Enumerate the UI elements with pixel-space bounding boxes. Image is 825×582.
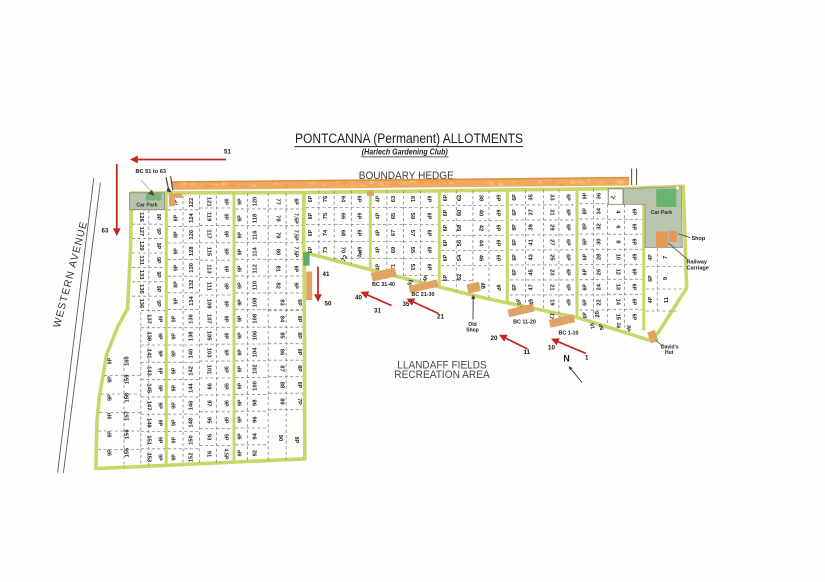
svg-text:32: 32 [597,223,603,229]
svg-text:9P: 9P [238,433,244,440]
svg-text:Carriage: Carriage [687,266,709,272]
svg-text:6P: 6P [631,239,637,246]
svg-text:20: 20 [595,310,602,317]
svg-text:100: 100 [253,381,259,391]
svg-text:9P: 9P [223,213,229,220]
svg-text:6P: 6P [631,284,637,291]
svg-text:90: 90 [277,435,283,441]
svg-text:6P: 6P [583,238,589,245]
svg-text:9P: 9P [223,198,229,205]
svg-text:4P: 4P [648,296,654,303]
svg-text:51: 51 [224,149,231,156]
svg-text:102: 102 [253,364,259,374]
svg-text:26: 26 [597,268,603,275]
svg-text:BC 11-20: BC 11-20 [513,320,536,326]
svg-text:9P: 9P [108,376,114,383]
svg-text:14: 14 [615,299,621,306]
svg-text:6P: 6P [443,239,449,246]
svg-text:97: 97 [206,400,212,406]
svg-text:9P: 9P [155,214,161,221]
svg-text:39: 39 [529,223,535,230]
svg-text:40: 40 [478,210,484,216]
svg-text:83: 83 [279,299,285,306]
svg-text:28: 28 [597,253,603,260]
svg-text:9P: 9P [155,228,161,235]
svg-text:9P: 9P [238,416,244,423]
svg-text:136: 136 [138,299,144,309]
svg-text:9P: 9P [155,300,161,307]
svg-text:124: 124 [189,212,195,222]
svg-text:9P: 9P [172,402,178,409]
svg-text:4P: 4P [376,246,382,253]
svg-text:9P: 9P [155,286,161,293]
svg-text:69: 69 [391,246,397,253]
svg-text:7.5P: 7.5P [293,213,299,224]
svg-text:10: 10 [615,254,621,260]
svg-text:9P: 9P [172,419,178,426]
svg-text:8P: 8P [293,437,299,444]
svg-text:6P: 6P [356,213,362,220]
svg-text:156: 156 [125,429,131,439]
svg-text:42: 42 [478,225,484,231]
svg-text:92: 92 [253,450,259,456]
svg-text:73: 73 [323,246,329,253]
svg-text:6P: 6P [565,254,571,261]
svg-text:6P: 6P [495,225,501,232]
svg-text:8P: 8P [174,231,180,238]
svg-text:9P: 9P [157,437,163,444]
svg-text:9P: 9P [238,215,244,222]
svg-text:87: 87 [279,365,285,371]
svg-text:85: 85 [279,332,285,339]
svg-text:9P: 9P [172,436,178,443]
svg-text:22: 22 [597,299,603,305]
svg-text:9P: 9P [174,264,180,271]
svg-text:7.5P: 7.5P [293,247,299,258]
svg-text:9P: 9P [223,332,229,339]
svg-text:98: 98 [253,399,259,406]
svg-text:6P: 6P [426,264,432,271]
svg-text:9P: 9P [223,383,229,390]
svg-text:126: 126 [138,212,144,222]
svg-text:6P: 6P [512,194,518,201]
svg-text:9P: 9P [238,299,244,306]
svg-text:91: 91 [206,451,212,458]
svg-text:9P: 9P [108,412,114,419]
svg-text:13: 13 [615,284,621,291]
svg-text:12: 12 [615,269,621,275]
svg-text:57: 57 [409,230,415,236]
svg-text:8P: 8P [174,281,180,288]
svg-text:35: 35 [529,193,535,200]
svg-text:6P: 6P [565,209,571,216]
svg-text:115: 115 [206,247,212,257]
svg-text:8P: 8P [296,316,302,323]
svg-text:15: 15 [615,314,621,321]
svg-text:112: 112 [253,264,259,273]
svg-text:65: 65 [391,212,397,219]
svg-text:76: 76 [323,195,329,202]
svg-text:9P: 9P [223,283,229,290]
svg-text:6P: 6P [631,209,637,216]
svg-text:9P: 9P [172,454,178,461]
svg-text:52: 52 [457,274,463,280]
svg-text:99: 99 [206,383,212,390]
svg-text:11: 11 [524,349,531,356]
svg-text:6P: 6P [583,268,589,275]
svg-text:6P: 6P [495,255,501,262]
svg-text:6P: 6P [565,194,571,201]
svg-text:6P: 6P [565,284,571,291]
svg-text:9P: 9P [172,384,178,391]
svg-text:110: 110 [253,281,259,290]
svg-text:119: 119 [206,212,212,222]
svg-text:6P: 6P [512,254,518,261]
svg-text:33: 33 [549,194,555,201]
svg-text:56: 56 [457,239,463,246]
svg-text:6P: 6P [426,230,432,237]
svg-text:81: 81 [275,266,281,273]
svg-text:144: 144 [189,383,195,393]
svg-text:9P: 9P [174,297,180,304]
svg-text:7: 7 [663,256,669,259]
svg-text:9P: 9P [223,434,229,441]
svg-text:9P: 9P [172,367,178,374]
svg-text:89: 89 [279,398,285,405]
svg-text:103: 103 [206,348,212,358]
svg-text:6P: 6P [293,198,299,205]
svg-text:6P: 6P [495,210,501,217]
svg-text:63: 63 [391,195,397,202]
svg-text:111: 111 [206,282,212,292]
svg-text:59: 59 [409,213,415,220]
svg-text:6P: 6P [631,224,637,231]
svg-text:8P: 8P [174,214,180,221]
svg-text:6P: 6P [308,212,314,219]
svg-text:9P: 9P [238,282,244,289]
svg-text:8P: 8P [296,349,302,356]
svg-text:9P: 9P [108,357,114,364]
svg-text:84: 84 [279,316,285,323]
svg-text:160: 160 [125,356,131,366]
svg-text:40: 40 [355,295,362,302]
svg-text:(Harlech Gardening Club): (Harlech Gardening Club) [362,147,448,157]
svg-text:4P: 4P [376,195,382,202]
svg-text:63: 63 [102,228,109,235]
svg-text:6P: 6P [426,196,432,203]
svg-text:133: 133 [138,270,144,280]
svg-text:9P: 9P [108,394,114,401]
svg-text:62: 62 [457,195,463,201]
svg-text:9P: 9P [238,231,244,238]
svg-text:137: 137 [146,314,152,324]
svg-text:94: 94 [253,432,259,439]
svg-text:35: 35 [403,301,410,308]
svg-text:9P: 9P [174,248,180,255]
svg-text:88: 88 [279,382,285,389]
svg-text:53: 53 [409,264,415,271]
svg-text:78: 78 [275,215,281,222]
svg-text:157: 157 [125,411,131,421]
svg-text:41: 41 [529,238,535,245]
svg-text:9P: 9P [157,316,163,323]
svg-text:6P: 6P [512,284,518,291]
svg-text:151: 151 [146,435,152,445]
svg-text:9P: 9P [157,454,163,461]
svg-text:118: 118 [253,213,259,223]
svg-text:68: 68 [340,230,346,237]
svg-text:9P: 9P [238,198,244,205]
svg-text:8P: 8P [583,223,589,230]
svg-text:9P: 9P [155,257,161,264]
svg-text:8P: 8P [296,365,302,372]
svg-text:23: 23 [549,269,555,276]
svg-text:136: 136 [189,313,195,323]
svg-text:24: 24 [597,283,603,290]
svg-text:1: 1 [585,355,589,362]
svg-text:Car Park: Car Park [136,203,157,209]
svg-text:7.5P: 7.5P [293,230,299,241]
svg-text:30: 30 [597,238,603,244]
svg-text:9P: 9P [223,231,229,238]
svg-text:9P: 9P [223,349,229,356]
svg-text:141: 141 [146,349,152,359]
svg-text:139: 139 [146,331,152,341]
svg-text:38: 38 [478,195,484,202]
svg-text:21: 21 [549,284,555,291]
svg-text:36: 36 [597,192,603,199]
svg-text:155: 155 [125,447,131,457]
svg-text:6P: 6P [443,254,449,261]
svg-text:BC 51 to 63: BC 51 to 63 [136,169,166,175]
svg-text:6P: 6P [565,224,571,231]
svg-text:34: 34 [597,207,603,214]
svg-text:6P: 6P [631,314,637,321]
svg-text:82: 82 [275,282,281,288]
svg-text:BC 1-10: BC 1-10 [558,331,578,337]
svg-text:50: 50 [325,301,332,308]
svg-text:6P: 6P [293,266,299,273]
svg-text:138: 138 [189,331,195,341]
svg-text:9P: 9P [172,350,178,357]
svg-text:4.5P: 4.5P [223,449,229,460]
svg-text:6P: 6P [443,194,449,201]
svg-text:116: 116 [253,230,259,240]
svg-text:107: 107 [206,314,212,324]
svg-text:9P: 9P [108,449,114,456]
svg-text:95: 95 [206,417,212,424]
svg-text:6P: 6P [512,209,518,216]
svg-text:121: 121 [206,197,212,207]
svg-text:6P: 6P [631,299,637,306]
svg-text:120: 120 [253,197,259,207]
svg-text:4P: 4P [376,263,382,270]
svg-text:108: 108 [253,313,259,323]
svg-text:114: 114 [253,247,259,257]
svg-text:9P: 9P [238,449,244,456]
svg-text:44: 44 [478,240,484,247]
svg-text:135: 135 [138,284,144,294]
svg-text:9P: 9P [157,350,163,357]
svg-text:130: 130 [189,263,195,273]
svg-text:60: 60 [457,210,463,216]
svg-text:6P: 6P [583,284,589,291]
svg-text:6P: 6P [631,269,637,276]
svg-text:79: 79 [275,232,281,239]
svg-text:9P: 9P [238,349,244,356]
svg-text:BC 31-40: BC 31-40 [372,282,395,288]
svg-text:6P: 6P [443,274,449,281]
svg-text:6P: 6P [565,269,571,276]
svg-text:11: 11 [664,296,670,303]
svg-text:45: 45 [529,268,535,275]
svg-text:4P: 4P [376,229,382,236]
svg-text:150: 150 [189,435,195,445]
svg-text:6P: 6P [583,299,589,306]
svg-text:117: 117 [206,229,212,238]
svg-text:N: N [563,354,569,364]
svg-text:37: 37 [529,209,535,215]
svg-text:Shop: Shop [692,236,706,242]
svg-text:148: 148 [189,417,195,427]
svg-text:9P: 9P [157,385,163,392]
svg-text:64: 64 [340,196,346,203]
svg-text:9P: 9P [157,368,163,375]
svg-text:153: 153 [146,453,152,463]
svg-text:127: 127 [138,227,144,237]
svg-text:9P: 9P [238,382,244,389]
svg-text:9P: 9P [157,402,163,409]
svg-text:58: 58 [457,224,463,231]
svg-text:106: 106 [253,330,259,340]
svg-text:6P: 6P [308,246,314,253]
svg-text:54: 54 [457,254,463,261]
svg-text:6P: 6P [443,224,449,231]
svg-text:7P: 7P [296,398,302,405]
svg-text:8P: 8P [583,208,589,215]
svg-text:10: 10 [548,345,555,352]
svg-text:126: 126 [189,229,195,239]
svg-text:9P: 9P [238,399,244,406]
svg-text:PONTCANNA (Permanent) ALLOTMEN: PONTCANNA (Permanent) ALLOTMENTS [295,131,523,147]
svg-text:6P: 6P [356,230,362,237]
svg-text:6P: 6P [565,239,571,246]
svg-text:31: 31 [549,209,555,216]
svg-text:9P: 9P [238,248,244,255]
svg-text:80: 80 [275,249,281,255]
svg-text:55: 55 [409,247,415,254]
svg-text:9P: 9P [223,366,229,373]
svg-text:6P: 6P [583,253,589,260]
svg-text:8P: 8P [512,224,518,231]
svg-text:6P: 6P [296,299,302,306]
svg-text:6P: 6P [443,209,449,216]
svg-text:140: 140 [189,349,195,359]
svg-text:16: 16 [615,322,622,329]
svg-text:43: 43 [529,253,535,260]
svg-text:6P: 6P [308,195,314,202]
svg-text:6P: 6P [631,254,637,261]
svg-text:101: 101 [206,365,212,375]
svg-text:142: 142 [189,366,195,376]
svg-text:9P: 9P [223,266,229,273]
svg-text:4P: 4P [376,212,382,219]
svg-text:6P: 6P [308,229,314,236]
svg-text:77: 77 [275,198,281,204]
svg-text:86: 86 [279,349,285,356]
svg-text:9P: 9P [172,315,178,322]
svg-text:9P: 9P [155,271,161,278]
svg-text:145: 145 [146,383,152,393]
svg-text:29: 29 [549,224,555,231]
svg-text:158: 158 [125,392,131,402]
svg-text:9P: 9P [238,265,244,272]
svg-text:47: 47 [529,284,535,290]
svg-text:Car Park: Car Park [651,210,672,216]
svg-text:122: 122 [189,198,195,208]
svg-text:149: 149 [146,418,152,428]
svg-text:128: 128 [189,246,195,256]
svg-text:25: 25 [549,254,555,261]
svg-text:21: 21 [437,314,444,321]
svg-text:104: 104 [253,347,259,357]
svg-text:146: 146 [189,400,195,410]
svg-text:6P: 6P [356,196,362,203]
svg-text:9P: 9P [157,333,163,340]
svg-text:9P: 9P [583,192,589,199]
svg-text:67: 67 [391,230,397,236]
svg-text:46: 46 [478,255,484,262]
svg-text:108: 108 [253,297,259,307]
svg-text:20: 20 [491,335,498,342]
svg-text:96: 96 [253,416,259,423]
svg-text:8P: 8P [296,382,302,389]
svg-text:27: 27 [549,239,555,245]
svg-text:8P: 8P [296,332,302,339]
svg-text:6P: 6P [512,239,518,246]
svg-text:41: 41 [323,271,330,278]
svg-text:143: 143 [146,366,152,376]
svg-text:6P: 6P [495,240,501,247]
svg-text:Shop: Shop [466,328,479,334]
svg-text:61: 61 [409,196,415,203]
svg-text:9P: 9P [172,333,178,340]
svg-text:6P: 6P [426,213,432,220]
svg-text:152: 152 [189,453,195,463]
svg-text:134: 134 [189,295,195,305]
svg-text:159: 159 [125,374,131,384]
svg-text:BC 21-30: BC 21-30 [411,292,434,298]
svg-text:6P: 6P [565,299,571,306]
svg-text:70: 70 [340,247,346,253]
svg-text:113: 113 [206,264,212,274]
svg-text:9P: 9P [223,400,229,407]
svg-text:9P: 9P [238,315,244,322]
svg-text:9P: 9P [223,417,229,424]
svg-text:129: 129 [138,241,144,251]
svg-text:Hut: Hut [665,350,674,356]
svg-text:19: 19 [549,299,555,306]
svg-text:9P: 9P [223,300,229,307]
svg-text:147: 147 [146,401,152,411]
svg-text:4P: 4P [648,254,654,261]
svg-text:9P: 9P [223,316,229,323]
svg-text:131: 131 [138,255,144,265]
svg-text:93: 93 [206,434,212,441]
svg-text:75: 75 [323,212,329,219]
svg-text:6P: 6P [512,269,518,276]
svg-text:109: 109 [206,299,212,309]
